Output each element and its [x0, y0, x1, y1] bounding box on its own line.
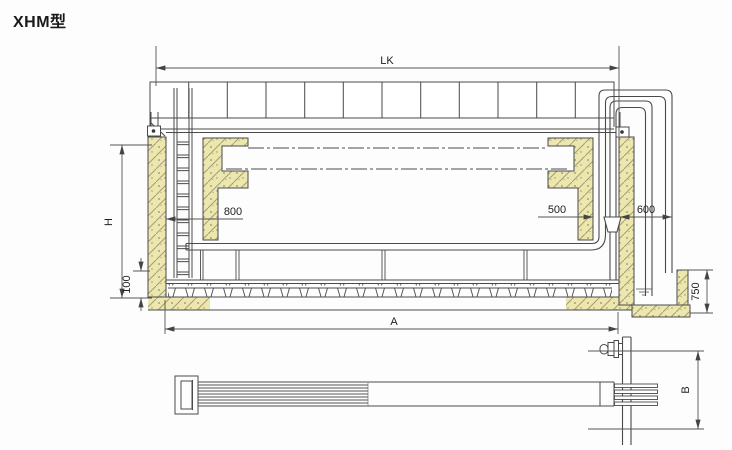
label-lk: LK [380, 55, 394, 67]
label-600: 600 [637, 204, 655, 216]
left-wall [148, 137, 166, 297]
pipe-supports [201, 250, 528, 280]
drawing-canvas: LK H 100 800 500 600 750 A [0, 0, 732, 450]
water-level-icon [636, 289, 652, 295]
label-b: B [680, 386, 692, 393]
section-view: LK H 100 800 500 600 750 A [103, 46, 713, 334]
filter-floor [166, 280, 619, 297]
nozzle-fitting [600, 341, 623, 358]
label-a: A [390, 316, 398, 328]
dim-100 [133, 258, 150, 311]
label-500: 500 [548, 204, 566, 216]
detail-view: B [175, 337, 704, 445]
label-800: 800 [224, 206, 242, 218]
anchor-fitting-right [616, 112, 629, 137]
label-h: H [103, 218, 115, 226]
drain-pit [632, 270, 690, 317]
label-100: 100 [121, 275, 133, 293]
left-trough [203, 138, 248, 240]
flange [175, 376, 198, 414]
technical-drawing-page: XHM型 [0, 0, 732, 450]
dim-h [110, 145, 152, 298]
right-wall [619, 137, 634, 305]
label-750: 750 [690, 282, 702, 300]
right-trough [548, 138, 593, 240]
rib-bars [615, 384, 658, 406]
cover-grating [150, 82, 619, 136]
funnel-fitting [604, 217, 621, 232]
water-lines [226, 148, 570, 169]
bottom-slab [148, 297, 634, 310]
screen-tube [198, 382, 614, 406]
